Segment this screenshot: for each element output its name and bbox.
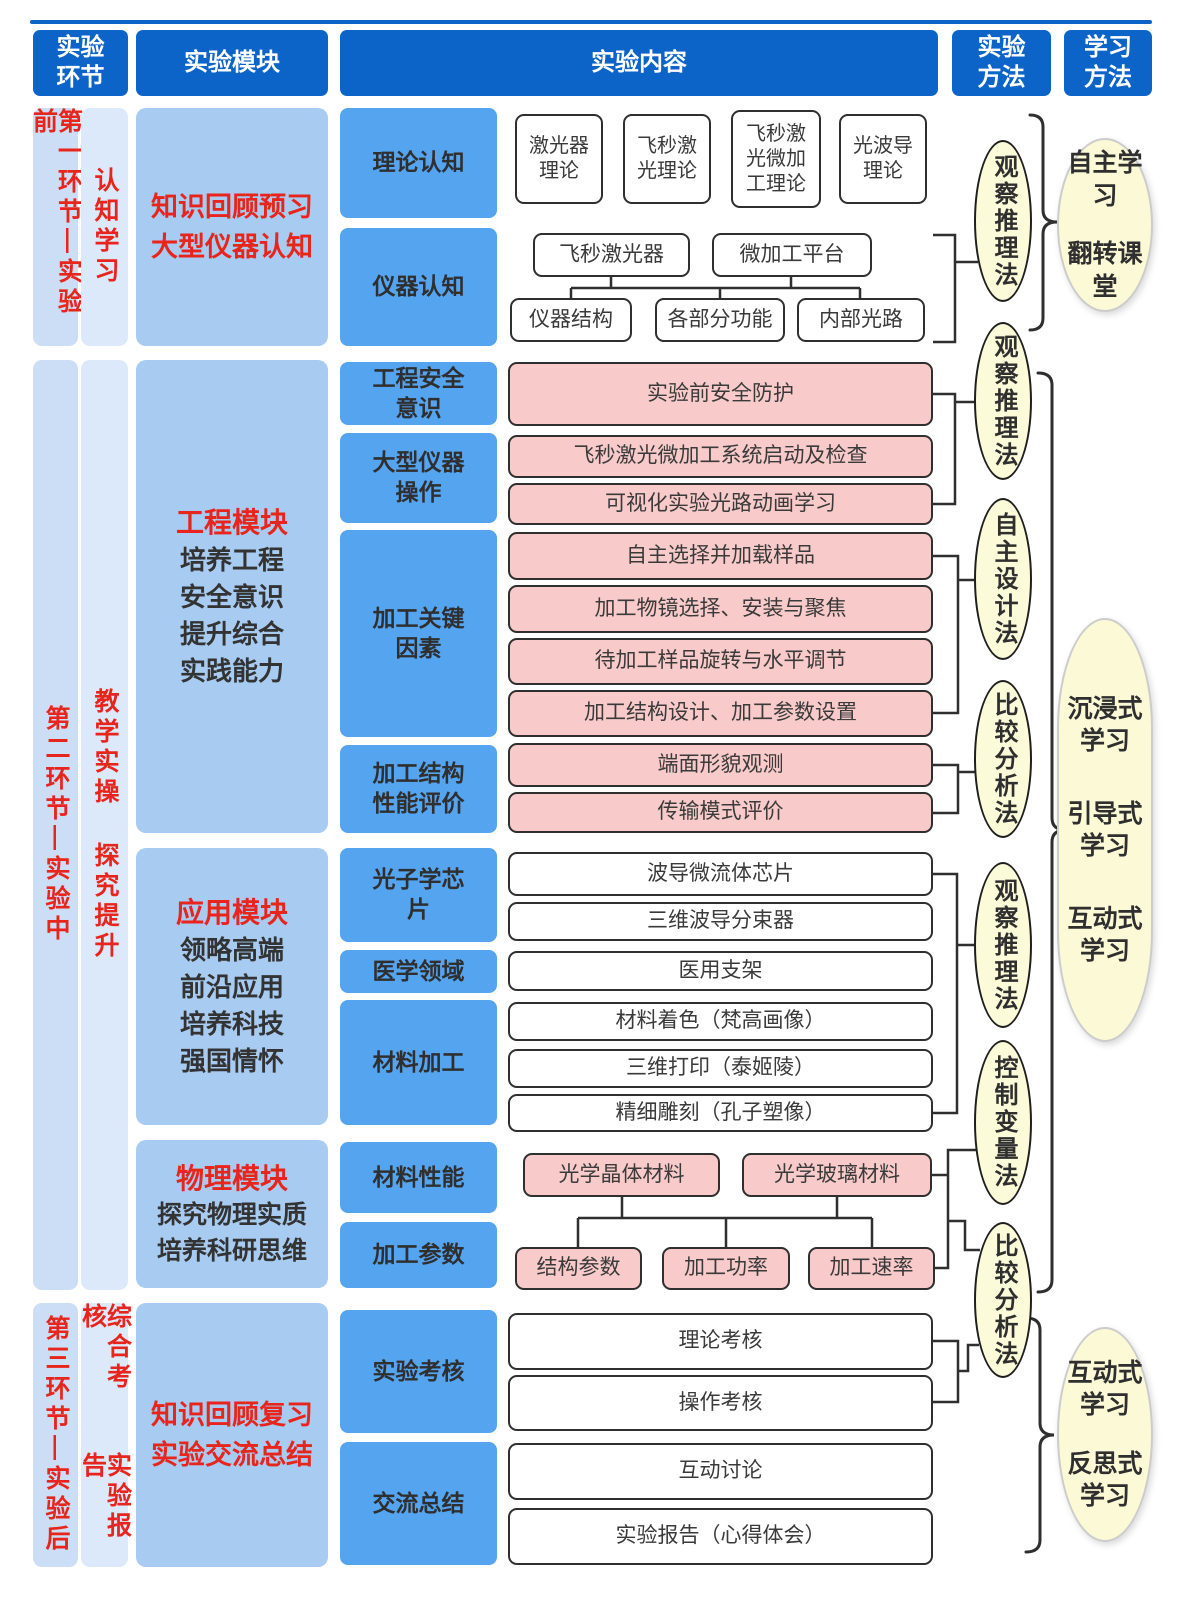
phase2-stage-label: 第二环节—实验中 [43,705,68,945]
learning-label-guided: 引导式学习 [1066,798,1144,863]
phase3-stage-strip: 第三环节—实验后 [33,1303,78,1567]
method-label-5: 观察推理法 [991,878,1015,1013]
module4-desc2: 培养科研思维 [157,1234,307,1270]
phase2-tag-1: 教学实操 [92,688,117,808]
box-micromachining-theory: 飞秒激光微加工理论 [731,110,821,208]
box-waveguide-theory: 光波导理论 [839,114,927,204]
box-component-functions: 各部分功能 [655,298,785,342]
box-instrument-structure: 仪器结构 [510,298,632,342]
method-label-6: 控制变量法 [991,1055,1015,1190]
module5-line1: 知识回顾复习 [151,1395,313,1436]
method-comparative-analysis-2: 比较分析法 [974,1222,1032,1378]
diagram-canvas: 实验环节 实验模块 实验内容 实验方法 学习方法 第一环节—实验前 认知学习 第… [0,0,1182,1600]
method-label-4: 比较分析法 [991,692,1015,827]
category-safety: 工程安全意识 [340,362,497,425]
method-label-1: 观察推理法 [991,154,1015,289]
header-phase: 实验环节 [33,30,128,96]
category-material-property: 材料性能 [340,1142,497,1213]
method-comparative-analysis-1: 比较分析法 [974,680,1032,838]
box-medical-stent: 医用支架 [508,951,933,991]
header-module: 实验模块 [136,30,328,96]
box-load-sample: 自主选择并加载样品 [508,532,933,580]
method-observation-reasoning-1: 观察推理法 [974,140,1032,302]
box-processing-power: 加工功率 [662,1247,790,1290]
box-3d-printing: 三维打印（泰姬陵） [508,1049,933,1088]
module2-desc3: 提升综合 [180,616,284,653]
box-safety-protection: 实验前安全防护 [508,362,933,426]
box-optical-crystal: 光学晶体材料 [523,1153,720,1197]
box-internal-optical-path: 内部光路 [797,298,925,342]
phase1-stage-strip: 第一环节—实验前 [33,108,78,346]
box-facet-morphology: 端面形貌观测 [508,743,933,787]
header-content: 实验内容 [340,30,938,96]
module3-desc3: 培养科技 [180,1006,284,1043]
category-key-factors: 加工关键因素 [340,530,497,737]
learning-self-flipped: 自主学习 翻转课堂 [1057,138,1153,312]
module-knowledge-preview: 知识回顾预习 大型仪器认知 [136,108,328,346]
module4-title: 物理模块 [176,1159,288,1198]
module-engineering: 工程模块 培养工程 安全意识 提升综合 实践能力 [136,360,328,833]
box-theory-assessment: 理论考核 [508,1313,933,1370]
learning-immersive-guided-interactive: 沉浸式学习 引导式学习 互动式学习 [1057,618,1153,1042]
learning-label-flipped-classroom: 翻转课堂 [1066,238,1144,303]
module5-line2: 实验交流总结 [151,1435,313,1476]
box-3d-waveguide-splitter: 三维波导分束器 [508,902,933,941]
box-processing-speed: 加工速率 [808,1247,935,1290]
box-visual-optical-path-learning: 可视化实验光路动画学习 [508,483,933,525]
method-observation-reasoning-3: 观察推理法 [974,862,1032,1028]
box-sample-rotation-leveling: 待加工样品旋转与水平调节 [508,638,933,685]
box-interactive-discussion: 互动讨论 [508,1443,933,1500]
box-waveguide-microfluidic-chip: 波导微流体芯片 [508,852,933,896]
category-material-processing: 材料加工 [340,1000,497,1125]
learning-label-immersive: 沉浸式学习 [1066,693,1144,758]
box-femtosecond-theory: 飞秒激光理论 [623,114,711,204]
box-transmission-mode-evaluation: 传输模式评价 [508,792,933,833]
category-summary: 交流总结 [340,1442,497,1565]
category-parameters: 加工参数 [340,1222,497,1288]
phase2-tag-strip: 教学实操 探究提升 [81,360,128,1290]
box-femtosecond-laser: 飞秒激光器 [533,233,690,277]
box-operation-assessment: 操作考核 [508,1375,933,1431]
phase1-tag-strip: 认知学习 [81,108,128,346]
module2-title: 工程模块 [176,503,288,542]
phase2-stage-strip: 第二环节—实验中 [33,360,78,1290]
module3-title: 应用模块 [176,893,288,932]
method-label-2: 观察推理法 [991,334,1015,469]
learning-label-interactive-2: 互动式学习 [1066,1357,1144,1422]
top-divider [30,20,1152,24]
category-evaluation: 加工结构性能评价 [340,745,497,833]
module2-desc2: 安全意识 [180,579,284,616]
box-system-startup-check: 飞秒激光微加工系统启动及检查 [508,435,933,478]
category-operation: 大型仪器操作 [340,433,497,523]
module4-desc1: 探究物理实质 [157,1198,307,1234]
method-label-3: 自主设计法 [991,512,1015,647]
category-theory: 理论认知 [340,108,497,218]
category-instrument: 仪器认知 [340,228,497,346]
learning-interactive-reflective: 互动式学习 反思式学习 [1057,1327,1153,1542]
method-label-7: 比较分析法 [991,1233,1015,1368]
phase1-tag: 认知学习 [92,167,117,287]
box-structure-parameter: 结构参数 [515,1247,642,1290]
method-observation-reasoning-2: 观察推理法 [974,322,1032,480]
module1-line2: 大型仪器认知 [151,227,313,268]
module1-line1: 知识回顾预习 [151,187,313,228]
module3-desc4: 强国情怀 [180,1043,284,1080]
phase3-stage-label: 第三环节—实验后 [43,1315,68,1555]
box-optical-glass: 光学玻璃材料 [742,1153,932,1197]
header-exp-method: 实验方法 [952,30,1051,96]
phase3-tag-strip: 综合考核 实验报告 [81,1303,128,1567]
header-learn-method: 学习方法 [1064,30,1152,96]
box-structure-design-parameters: 加工结构设计、加工参数设置 [508,690,933,737]
module3-desc1: 领略高端 [180,932,284,969]
learning-label-reflective: 反思式学习 [1066,1448,1144,1513]
box-fine-engraving: 精细雕刻（孔子塑像） [508,1094,933,1132]
box-experiment-report: 实验报告（心得体会） [508,1508,933,1565]
category-medical: 医学领域 [340,950,497,993]
category-photonic-chip: 光子学芯片 [340,848,497,942]
learning-label-self-study: 自主学习 [1066,147,1144,212]
module2-desc1: 培养工程 [180,542,284,579]
method-self-design: 自主设计法 [974,498,1032,660]
box-material-coloring: 材料着色（梵高画像） [508,1002,933,1041]
phase3-tag-1: 综合考核 [80,1303,130,1418]
module2-desc4: 实践能力 [180,653,284,690]
box-objective-selection: 加工物镜选择、安装与聚焦 [508,585,933,633]
module-physics: 物理模块 探究物理实质 培养科研思维 [136,1140,328,1288]
box-micromachining-platform: 微加工平台 [712,233,872,277]
method-controlled-variable: 控制变量法 [974,1040,1032,1205]
category-assessment: 实验考核 [340,1310,497,1433]
box-laser-theory: 激光器理论 [515,114,603,204]
learning-label-interactive: 互动式学习 [1066,903,1144,968]
phase1-stage-label: 第一环节—实验前 [31,108,81,346]
module-review-summary: 知识回顾复习 实验交流总结 [136,1303,328,1567]
phase2-tag-2: 探究提升 [92,842,117,962]
module3-desc2: 前沿应用 [180,969,284,1006]
module-application: 应用模块 领略高端 前沿应用 培养科技 强国情怀 [136,848,328,1125]
phase3-tag-2: 实验报告 [80,1452,130,1567]
